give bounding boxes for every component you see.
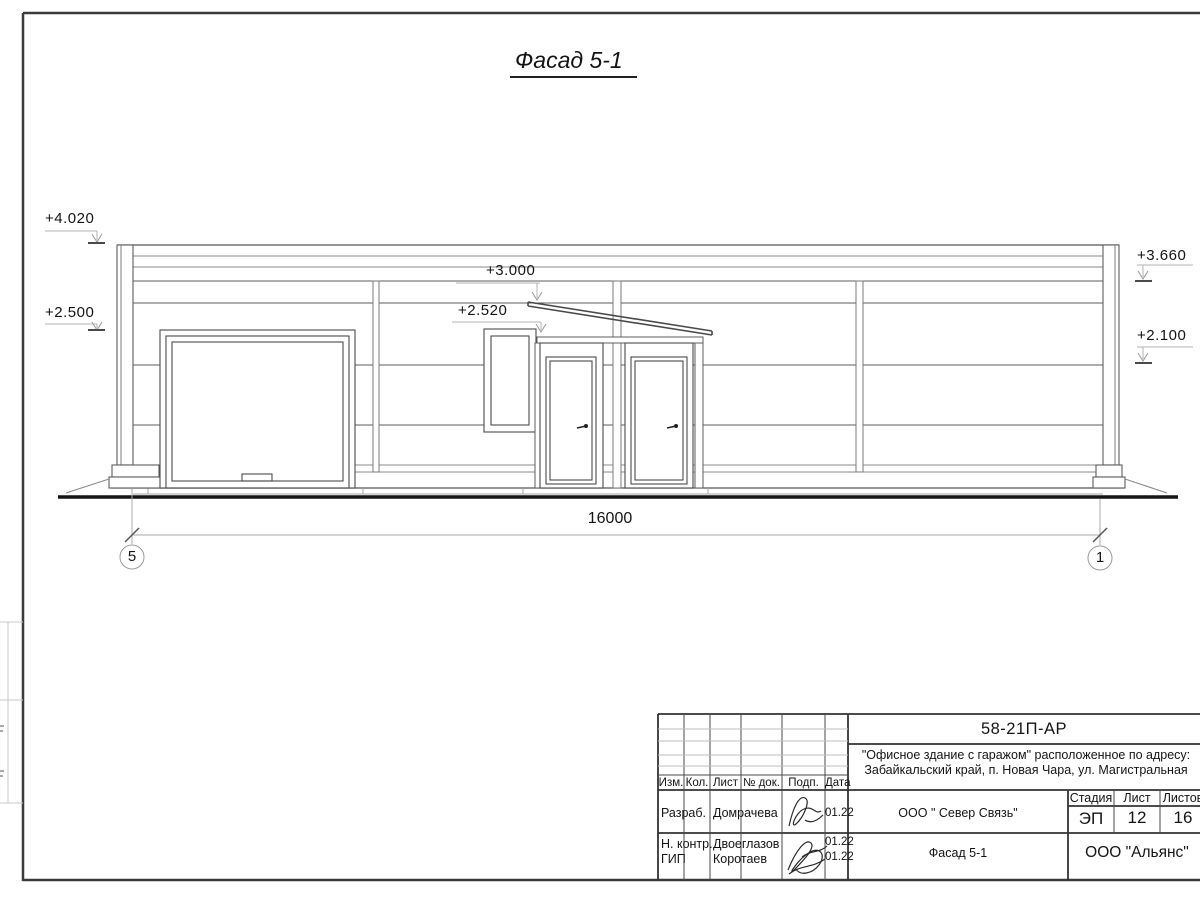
tb-project-line1: "Офисное здание с гаражом" расположенное… bbox=[852, 748, 1200, 762]
dimension-line bbox=[120, 489, 1112, 570]
tb-col-sign: Подп. bbox=[782, 777, 825, 789]
tb-row-name: Коротаев bbox=[713, 852, 767, 866]
tb-sheets-total: 16 bbox=[1160, 808, 1200, 828]
tb-col-list: Лист bbox=[710, 777, 741, 789]
dimension-total: 16000 bbox=[560, 510, 660, 528]
tb-col-date: Дата bbox=[825, 777, 848, 789]
level-mark-left-mid: +2.500 bbox=[45, 304, 94, 321]
garage-door bbox=[160, 330, 355, 488]
signature-2 bbox=[788, 842, 827, 874]
level-mark-center-top: +3.000 bbox=[486, 262, 535, 279]
level-mark-right-top: +3.660 bbox=[1137, 247, 1186, 264]
tb-client: ООО " Север Связь" bbox=[848, 806, 1068, 820]
tb-row-role: ГИП bbox=[661, 852, 686, 866]
door-left bbox=[540, 343, 603, 488]
tb-col-izm: Изм. bbox=[658, 777, 684, 789]
axis-label-1: 1 bbox=[1088, 549, 1112, 566]
left-edge-stub bbox=[0, 622, 23, 803]
tb-row-date: 01.22 bbox=[825, 807, 848, 819]
tb-doc-code: 58-21П-АР bbox=[848, 720, 1200, 739]
tb-row-date: 01.22 bbox=[825, 836, 848, 848]
tb-sheet-number: 12 bbox=[1114, 808, 1160, 828]
tb-company: ООО "Альянс" bbox=[1068, 844, 1200, 862]
tb-sheet-title: Фасад 5-1 bbox=[848, 846, 1068, 860]
axis-label-5: 5 bbox=[120, 548, 144, 565]
tb-row-role: Разраб. bbox=[661, 806, 706, 820]
level-mark-center-mid: +2.520 bbox=[458, 302, 507, 319]
wall-posts bbox=[373, 281, 863, 488]
tb-col-kol: Кол. bbox=[684, 777, 710, 789]
tb-row-date: 01.22 bbox=[825, 851, 848, 863]
level-mark-right-mid: +2.100 bbox=[1137, 327, 1186, 344]
level-mark-left-top: +4.020 bbox=[45, 210, 94, 227]
view-title: Фасад 5-1 bbox=[510, 47, 637, 78]
tb-project-line2: Забайкальский край, п. Новая Чара, ул. М… bbox=[852, 763, 1200, 777]
tb-sheets-label: Листов bbox=[1160, 791, 1200, 805]
tb-stage-label: Стадия bbox=[1068, 791, 1114, 805]
tb-sheet-label: Лист bbox=[1114, 791, 1160, 805]
tb-row-role: Н. контр. bbox=[661, 837, 713, 851]
signature-1 bbox=[789, 798, 823, 826]
tb-row-name: Двоеглазов bbox=[713, 837, 779, 851]
tb-row-name: Домрачева bbox=[713, 806, 778, 820]
tb-stage-value: ЭП bbox=[1068, 809, 1114, 829]
signatures bbox=[788, 798, 827, 874]
drawing-sheet: { "drawing": { "view_title": "Фасад 5-1"… bbox=[0, 0, 1200, 900]
window bbox=[484, 329, 536, 432]
tb-col-doc: № док. bbox=[741, 777, 782, 789]
door-right bbox=[625, 343, 693, 488]
